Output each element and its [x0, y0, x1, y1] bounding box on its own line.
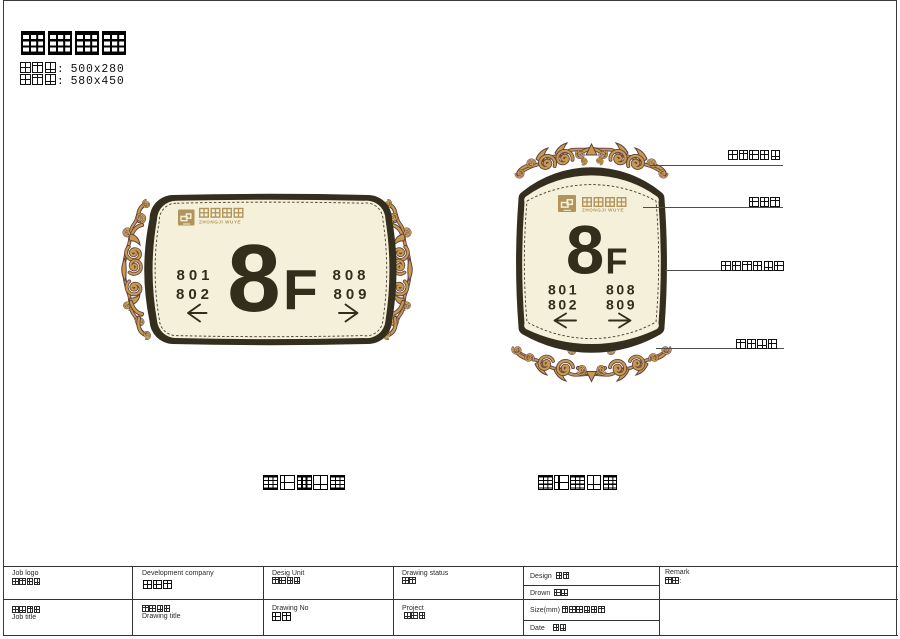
- svg-text:808: 808: [333, 267, 370, 284]
- svg-text:F: F: [606, 241, 628, 282]
- svg-text:801: 801: [177, 267, 214, 284]
- svg-text:809: 809: [606, 296, 637, 312]
- svg-text:809: 809: [334, 286, 371, 303]
- svg-text:801: 801: [548, 282, 579, 298]
- svg-text:8: 8: [227, 225, 280, 332]
- svg-text:802: 802: [176, 286, 213, 303]
- svg-text:ZHONGJI WUYE: ZHONGJI WUYE: [199, 220, 241, 225]
- svg-text:8: 8: [566, 212, 604, 289]
- svg-text:808: 808: [606, 282, 637, 298]
- svg-text:F: F: [283, 259, 318, 323]
- svg-text:802: 802: [548, 296, 579, 312]
